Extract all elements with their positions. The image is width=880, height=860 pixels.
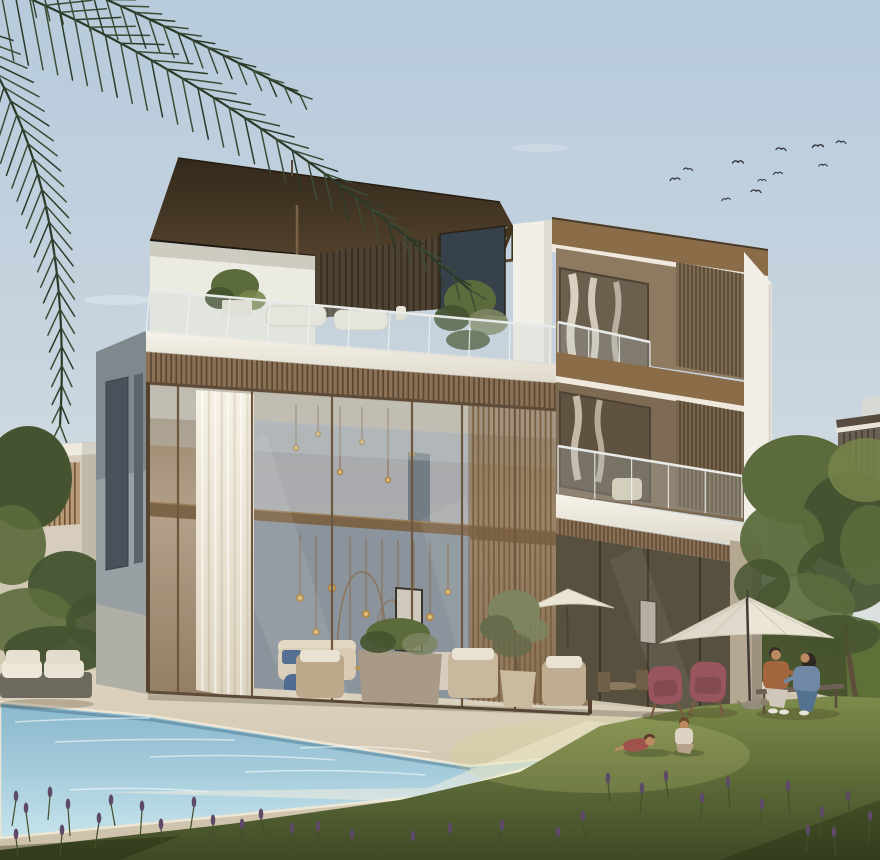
parasol-pole bbox=[567, 606, 568, 648]
sun-patch bbox=[450, 717, 750, 793]
dining-chair bbox=[636, 670, 648, 690]
rw-3f-slat-screen bbox=[676, 262, 744, 378]
woman-torso bbox=[793, 666, 820, 693]
man-face bbox=[771, 650, 781, 660]
side-window-slit bbox=[134, 373, 143, 564]
chair-shadow bbox=[686, 708, 738, 718]
chair-seat bbox=[694, 676, 721, 694]
man-shoe bbox=[768, 709, 778, 714]
dog-head bbox=[760, 698, 768, 706]
man-shoe bbox=[779, 710, 789, 715]
chair-cushion bbox=[452, 648, 494, 660]
chair-cushion bbox=[546, 656, 582, 668]
woman-face bbox=[800, 653, 809, 662]
side-wall-sunlit-base bbox=[96, 604, 148, 694]
bench-shadow bbox=[756, 708, 840, 720]
dining-chair bbox=[598, 672, 610, 692]
white-curtain bbox=[196, 390, 254, 700]
sofa-pillow bbox=[6, 650, 40, 664]
parasol-finial bbox=[747, 590, 748, 598]
planter-box bbox=[358, 650, 442, 704]
olive-tree-pot bbox=[500, 670, 536, 708]
render-canvas: Architectural rendering of a modern thre… bbox=[0, 0, 880, 860]
right-wing bbox=[556, 248, 772, 718]
villa-exterior-render: Architectural rendering of a modern thre… bbox=[0, 0, 880, 860]
side-window bbox=[106, 377, 128, 570]
chair-seat bbox=[653, 679, 678, 697]
child-sitting-torso bbox=[675, 728, 693, 745]
sofa-shadow bbox=[0, 699, 94, 709]
man-torso bbox=[763, 661, 789, 689]
woman-shoe bbox=[799, 711, 809, 716]
cloud-wisp bbox=[510, 144, 570, 152]
cloud-wisp bbox=[84, 295, 152, 305]
chair-cushion bbox=[300, 650, 340, 662]
sofa-pillow bbox=[46, 650, 80, 664]
